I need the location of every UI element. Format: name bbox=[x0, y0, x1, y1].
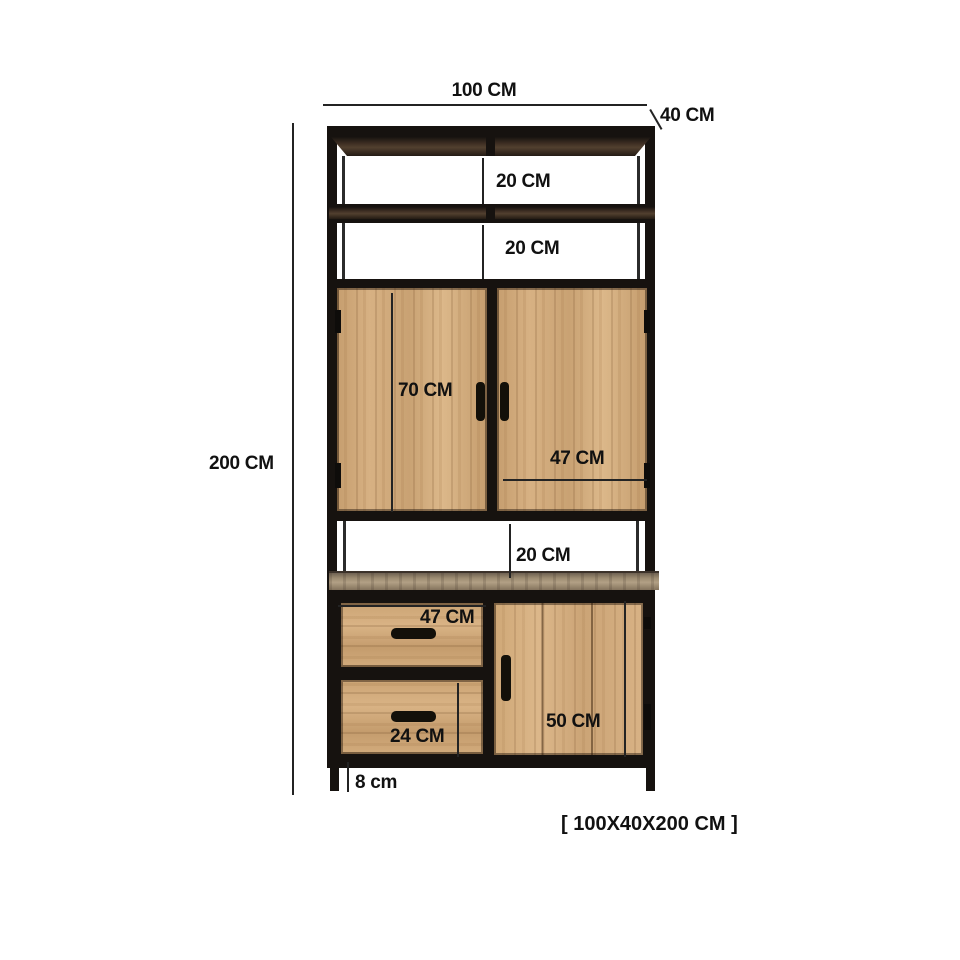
drawer-bottom-handle bbox=[391, 711, 436, 722]
upper-section-top-bar bbox=[327, 279, 655, 288]
label-drawer-height: 24 CM bbox=[390, 726, 444, 748]
cabinet-right-leg bbox=[646, 768, 655, 791]
back-post-right-second bbox=[637, 223, 640, 280]
back-post-left-middle bbox=[343, 521, 346, 572]
hinge-lower-right-bottom bbox=[644, 704, 651, 730]
cabinet-bottom-bar bbox=[327, 758, 655, 768]
lower-door-handle bbox=[501, 655, 511, 701]
back-post-left-second bbox=[342, 223, 345, 280]
top-shelf-center-support bbox=[486, 137, 495, 156]
cabinet-left-leg bbox=[330, 768, 339, 791]
upper-center-stile bbox=[487, 288, 497, 511]
hinge-upper-right-bottom bbox=[644, 463, 650, 488]
hinge-lower-right-top bbox=[644, 617, 651, 629]
hinge-upper-left-top bbox=[335, 310, 341, 333]
label-depth: 40 CM bbox=[660, 105, 714, 127]
upper-right-door bbox=[497, 288, 647, 511]
dim-middle-gap-line bbox=[509, 524, 511, 578]
cabinet-top-bar bbox=[327, 126, 655, 137]
second-shelf-center-support bbox=[486, 204, 495, 223]
hinge-upper-right-top bbox=[644, 310, 650, 333]
drawer-top-handle bbox=[391, 628, 436, 639]
label-shelf-gap-2: 20 CM bbox=[505, 238, 559, 260]
furniture-dimension-diagram: 100 CM 40 CM 200 CM 20 CM 20 CM 70 CM 47… bbox=[0, 0, 960, 960]
dim-total-height-line bbox=[292, 123, 294, 795]
back-post-right-middle bbox=[636, 521, 639, 572]
middle-shelf-bar bbox=[327, 590, 655, 600]
label-drawer-width: 47 CM bbox=[420, 607, 474, 629]
dim-shelf-gap-2-line bbox=[482, 225, 484, 279]
back-post-right-upper bbox=[637, 156, 640, 206]
label-leg-height: 8 cm bbox=[355, 772, 397, 794]
label-upper-door-height: 70 CM bbox=[398, 380, 452, 402]
middle-shelf-board bbox=[329, 571, 659, 590]
back-post-left-upper bbox=[342, 156, 345, 206]
upper-right-door-handle bbox=[500, 382, 509, 421]
label-overall-size: [ 100X40X200 CM ] bbox=[561, 813, 738, 836]
upper-left-door-handle bbox=[476, 382, 485, 421]
dim-upper-door-width-line bbox=[503, 479, 647, 481]
dim-drawer-height-line bbox=[457, 683, 459, 757]
dim-upper-door-height-line bbox=[391, 293, 393, 512]
label-lower-door-height: 50 CM bbox=[546, 711, 600, 733]
dim-lower-door-height-line bbox=[624, 601, 626, 757]
dim-total-width-line bbox=[323, 104, 647, 106]
label-total-width: 100 CM bbox=[424, 80, 544, 102]
dim-shelf-gap-1-line bbox=[482, 158, 484, 204]
label-middle-gap: 20 CM bbox=[516, 545, 570, 567]
label-shelf-gap-1: 20 CM bbox=[496, 171, 550, 193]
label-total-height: 200 CM bbox=[209, 453, 274, 475]
hinge-upper-left-bottom bbox=[335, 463, 341, 488]
label-upper-door-width: 47 CM bbox=[550, 448, 604, 470]
dim-leg-height-line bbox=[347, 762, 349, 792]
upper-door-bottom-bar bbox=[327, 511, 655, 521]
